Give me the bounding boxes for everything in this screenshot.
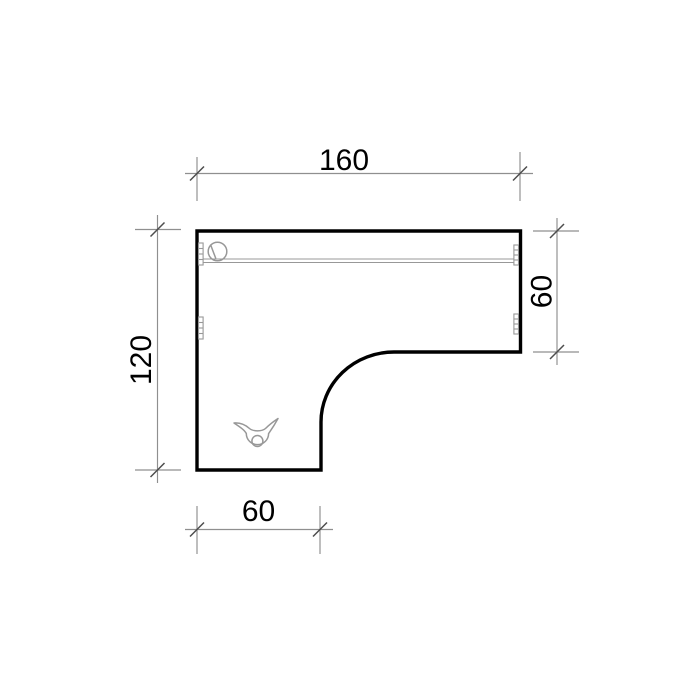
hinge-mark-left-top — [199, 243, 204, 265]
dimension-label-left: 120 — [125, 335, 158, 385]
desk-plan-drawing: 160 120 60 60 — [0, 0, 700, 700]
dimension-label-top: 160 — [319, 144, 369, 177]
technical-drawing-canvas: 160 120 60 60 — [0, 0, 700, 700]
hinge-mark-right-top — [514, 245, 519, 265]
hinge-mark-right-bottom — [514, 314, 519, 334]
desk-worktop-outline — [197, 231, 521, 470]
dimension-label-bottom: 60 — [242, 495, 275, 528]
dimension-label-right: 60 — [526, 275, 559, 308]
desk-outline-group — [197, 231, 521, 470]
hinge-mark-left-bottom — [199, 317, 204, 339]
